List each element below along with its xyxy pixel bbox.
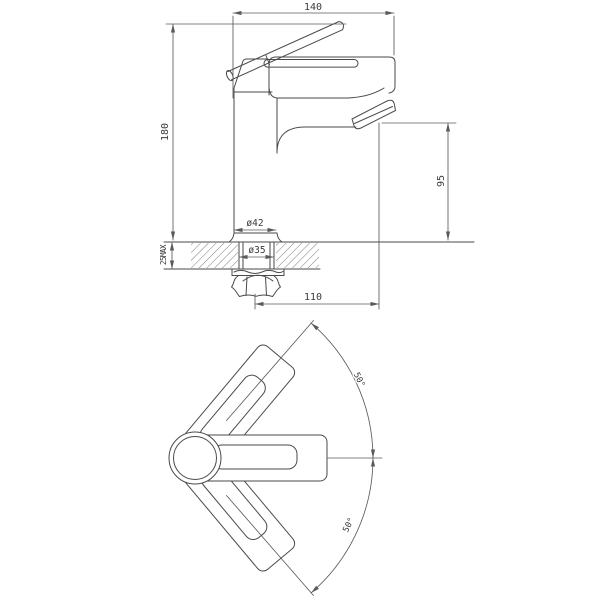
faucet-body-plan [169,432,221,484]
handle-closed [264,60,358,68]
dim-deck-thickness-label: 25MAX [159,244,168,265]
dim-body-diameter-label: ø42 [246,218,263,229]
dim-110-line [255,123,379,309]
dim-180-line [166,24,346,240]
dim-hole-diameter-label: ø35 [248,245,265,256]
base-flange [229,233,282,242]
raised-handle-phantom [225,22,343,82]
body-circle-outer [169,432,221,484]
faucet-technical-drawing: 140 180 95 ø42 ø35 25MAX 110 [0,0,600,600]
dim-spout-reach-label: 110 [304,292,322,303]
head-block [269,57,395,95]
top-view: 50° 50° [169,321,382,596]
faucet-body-outline [229,57,396,242]
dim-swing-lower-label: 50° [341,516,357,534]
countertop-hatch-right [276,243,319,268]
countertop-hatch-left [191,243,238,268]
dim-swing-upper-label: 50° [351,371,367,389]
dim-spout-height-label: 95 [436,175,447,187]
body-column [234,92,277,233]
dim-140-line [233,13,394,98]
side-view: 140 180 95 ø42 ø35 25MAX 110 [159,2,474,309]
dim-overall-height-label: 180 [160,123,171,141]
head-bottom-edge [269,86,384,98]
drawing-canvas: 140 180 95 ø42 ø35 25MAX 110 [0,0,600,600]
aerator [352,100,396,129]
top-view-dimension-labels: 50° 50° [341,371,366,534]
countertop-section [164,242,474,269]
spout-underside [277,127,356,153]
dim-top-width-label: 140 [304,2,322,13]
mounting-nut [232,269,285,297]
